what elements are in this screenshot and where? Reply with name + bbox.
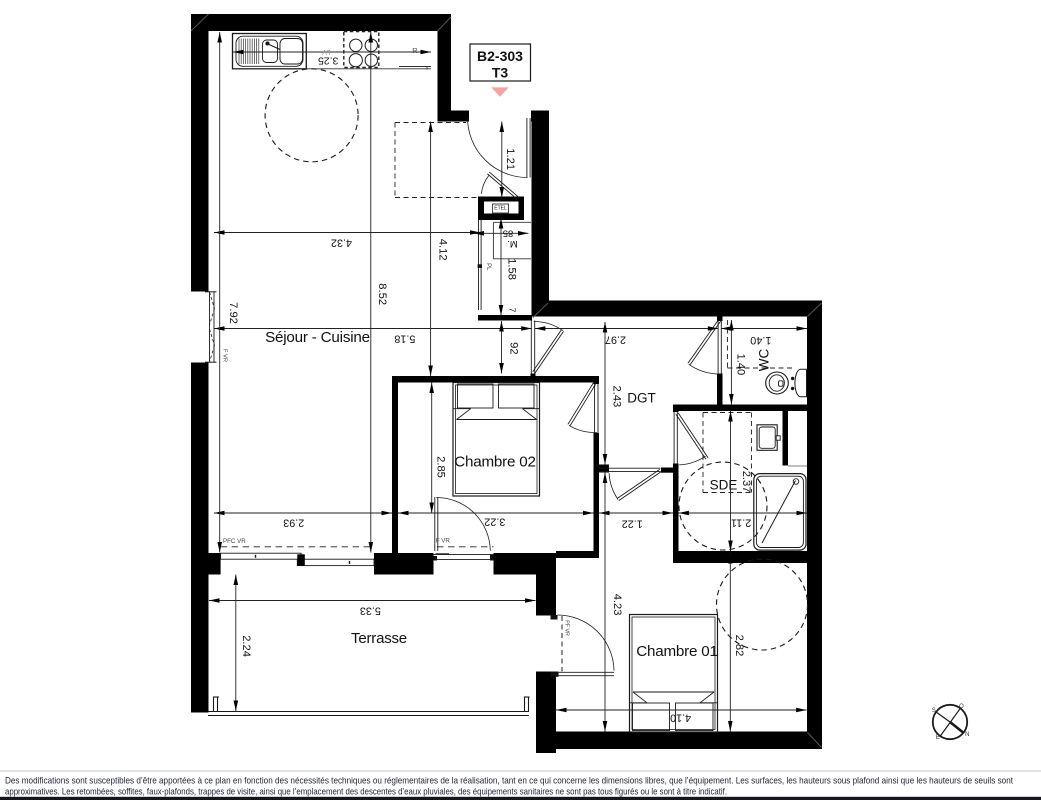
- svg-text:PL: PL: [485, 263, 491, 271]
- svg-text:Des modifications sont suscept: Des modifications sont susceptibles d’êt…: [5, 775, 1013, 785]
- svg-text:PF VR: PF VR: [564, 620, 570, 636]
- svg-text:B2-303: B2-303: [477, 48, 523, 64]
- svg-text:4.23: 4.23: [611, 594, 623, 616]
- svg-text:85: 85: [503, 228, 514, 239]
- svg-text:ETEL: ETEL: [494, 206, 507, 212]
- svg-text:2.93: 2.93: [283, 517, 304, 529]
- svg-text:2.97: 2.97: [605, 334, 626, 346]
- svg-text:approximatives. Les retombées,: approximatives. Les retombées, soffites,…: [5, 787, 727, 797]
- svg-text:3.22: 3.22: [484, 516, 505, 528]
- svg-text:F VR: F VR: [436, 537, 451, 544]
- svg-text:2.24: 2.24: [240, 635, 252, 657]
- svg-text:1.40: 1.40: [734, 354, 746, 376]
- svg-text:4.32: 4.32: [331, 237, 352, 249]
- svg-text:4.12: 4.12: [436, 239, 448, 261]
- svg-text:92: 92: [507, 342, 519, 354]
- svg-text:S: S: [932, 708, 936, 714]
- svg-text:DGT: DGT: [627, 391, 656, 406]
- svg-text:M.: M.: [507, 238, 518, 249]
- svg-text:5.18: 5.18: [394, 333, 415, 345]
- svg-text:Séjour - Cuisine: Séjour - Cuisine: [265, 329, 370, 346]
- svg-text:2.43: 2.43: [610, 386, 622, 408]
- svg-text:8.52: 8.52: [376, 283, 388, 305]
- svg-text:O: O: [959, 704, 964, 710]
- svg-text:N: N: [965, 732, 969, 738]
- svg-text:7.92: 7.92: [227, 302, 239, 324]
- svg-text:2.85: 2.85: [435, 456, 447, 478]
- svg-text:T3: T3: [492, 65, 509, 81]
- svg-text:2.11: 2.11: [731, 517, 751, 529]
- svg-text:F VR: F VR: [222, 349, 228, 362]
- svg-text:4.10: 4.10: [670, 712, 691, 724]
- svg-text:1.58: 1.58: [506, 258, 518, 280]
- svg-text:PFC VR: PFC VR: [223, 538, 246, 545]
- svg-text:1.22: 1.22: [622, 518, 643, 530]
- svg-text:2.82: 2.82: [733, 635, 745, 657]
- svg-text:7: 7: [508, 308, 518, 313]
- svg-text:Chambre 01: Chambre 01: [636, 643, 718, 660]
- svg-text:Chambre 02: Chambre 02: [454, 454, 536, 471]
- svg-text:R: R: [412, 46, 418, 55]
- svg-text:3.25: 3.25: [318, 54, 339, 66]
- svg-text:SDE: SDE: [710, 478, 738, 493]
- svg-text:Terrasse: Terrasse: [351, 630, 407, 647]
- svg-text:2.37: 2.37: [740, 471, 752, 493]
- svg-text:5.33: 5.33: [360, 604, 381, 616]
- svg-text:1.40: 1.40: [750, 334, 771, 346]
- svg-text:1.21: 1.21: [504, 148, 516, 170]
- svg-text:E: E: [936, 735, 940, 741]
